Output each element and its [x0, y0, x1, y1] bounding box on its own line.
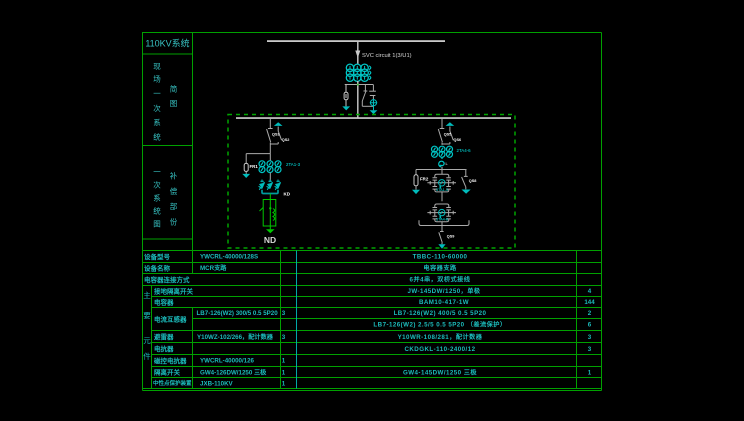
- svg-text:设备型号: 设备型号: [144, 252, 171, 261]
- svg-text:1: 1: [282, 358, 286, 365]
- svg-text:偿: 偿: [170, 186, 178, 196]
- svg-text:QS2: QS2: [282, 138, 290, 142]
- svg-text:144: 144: [584, 299, 595, 306]
- svg-text:GW4-126DW/1250 三极: GW4-126DW/1250 三极: [200, 368, 267, 376]
- svg-text:避雷器: 避雷器: [153, 332, 174, 341]
- svg-text:SVC circuit 1(3/U1): SVC circuit 1(3/U1): [362, 53, 412, 59]
- svg-text:BAM10-417-1W: BAM10-417-1W: [419, 299, 469, 306]
- svg-text:3: 3: [282, 310, 286, 317]
- svg-text:份: 份: [170, 216, 178, 226]
- svg-text:QS1: QS1: [272, 132, 280, 136]
- svg-text:ND: ND: [264, 235, 276, 245]
- svg-text:统: 统: [153, 206, 161, 216]
- svg-text:电抗器: 电抗器: [154, 344, 174, 353]
- svg-text:1: 1: [282, 369, 286, 376]
- svg-text:Y10WZ-102/266，配计数器: Y10WZ-102/266，配计数器: [197, 333, 274, 341]
- svg-text:6: 6: [588, 322, 592, 329]
- svg-text:图: 图: [153, 220, 161, 229]
- svg-text:一: 一: [153, 89, 161, 98]
- svg-text:QS8: QS8: [469, 179, 477, 183]
- svg-text:110KV系统: 110KV系统: [145, 38, 189, 49]
- svg-text:QS9: QS9: [447, 235, 455, 239]
- svg-text:2TA4-6: 2TA4-6: [457, 148, 472, 153]
- svg-text:2: 2: [588, 310, 592, 317]
- svg-text:一: 一: [153, 168, 161, 177]
- svg-text:中性点保护装置: 中性点保护装置: [153, 379, 192, 387]
- svg-text:LB7-126(W2) 300/5 0.5 5P20: LB7-126(W2) 300/5 0.5 5P20: [197, 310, 279, 317]
- svg-text:次: 次: [153, 103, 161, 113]
- svg-text:YWCRL-40000/126: YWCRL-40000/126: [200, 358, 255, 365]
- svg-text:3TA1-3: 3TA1-3: [436, 188, 448, 192]
- svg-text:FR2: FR2: [420, 177, 429, 182]
- svg-text:元: 元: [143, 336, 151, 345]
- svg-text:1: 1: [588, 369, 592, 376]
- svg-text:2TA1-3: 2TA1-3: [286, 162, 301, 167]
- svg-text:LB7-126(W2) 400/5 0.5 5P20: LB7-126(W2) 400/5 0.5 5P20: [394, 310, 487, 317]
- svg-text:JXB-110KV: JXB-110KV: [200, 380, 234, 387]
- svg-text:简: 简: [170, 84, 178, 94]
- svg-text:Y10WR-108/281，配计数器: Y10WR-108/281，配计数器: [398, 333, 483, 341]
- svg-text:主: 主: [143, 290, 151, 300]
- svg-text:场: 场: [153, 74, 161, 83]
- svg-text:要: 要: [143, 311, 151, 320]
- svg-text:次: 次: [153, 180, 161, 190]
- svg-text:电容器: 电容器: [154, 297, 174, 306]
- svg-text:CKDGKL-110-2400/12: CKDGKL-110-2400/12: [404, 346, 475, 353]
- svg-text:3TA4-6: 3TA4-6: [436, 218, 448, 222]
- svg-text:GW4-145DW/1250 三极: GW4-145DW/1250 三极: [403, 368, 477, 376]
- svg-text:磁控电抗器: 磁控电抗器: [154, 356, 187, 365]
- svg-text:FR1: FR1: [250, 164, 259, 169]
- svg-text:YWCRL-40000/128S: YWCRL-40000/128S: [200, 254, 258, 261]
- svg-text:6并4串，双桥式接线: 6并4串，双桥式接线: [410, 276, 471, 284]
- svg-text:LB7-126(W2) 2.5/5 0.5 5P20 （差流: LB7-126(W2) 2.5/5 0.5 5P20 （差流保护）: [373, 321, 506, 329]
- svg-text:QS6: QS6: [454, 138, 462, 142]
- svg-text:QS5: QS5: [444, 132, 452, 136]
- svg-text:3: 3: [588, 334, 592, 341]
- svg-text:补: 补: [170, 171, 178, 181]
- svg-text:3: 3: [588, 346, 592, 353]
- svg-text:4: 4: [588, 288, 592, 295]
- svg-text:系: 系: [153, 117, 161, 127]
- svg-text:系: 系: [153, 193, 161, 203]
- svg-text:图: 图: [170, 99, 178, 108]
- svg-text:件: 件: [143, 351, 151, 361]
- svg-text:现: 现: [153, 62, 161, 71]
- svg-text:3: 3: [282, 334, 286, 341]
- svg-text:电流互感器: 电流互感器: [154, 315, 187, 324]
- svg-text:1: 1: [282, 380, 286, 387]
- svg-text:KD: KD: [284, 191, 291, 196]
- svg-text:电容器支路: 电容器支路: [423, 264, 457, 272]
- svg-text:JW-145DW/1250，单极: JW-145DW/1250，单极: [407, 287, 480, 295]
- svg-text:接地隔离开关: 接地隔离开关: [154, 286, 194, 295]
- svg-text:设备名称: 设备名称: [144, 263, 171, 272]
- svg-text:MCR支路: MCR支路: [200, 264, 227, 272]
- svg-text:TBBC-110-60000: TBBC-110-60000: [413, 254, 468, 261]
- svg-text:部: 部: [170, 201, 178, 211]
- svg-text:隔离开关: 隔离开关: [154, 368, 181, 377]
- svg-text:电容器连接方式: 电容器连接方式: [144, 275, 190, 284]
- svg-text:统: 统: [153, 132, 161, 142]
